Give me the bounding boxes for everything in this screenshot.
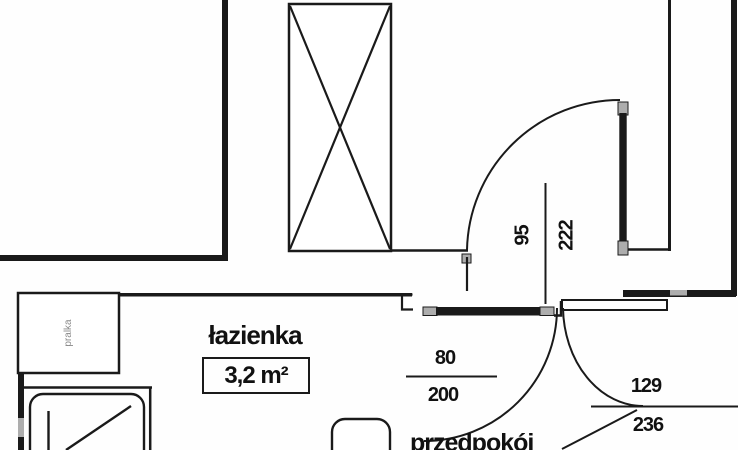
- hall-door-width: 95: [512, 206, 535, 266]
- bath-door-width: 80: [405, 347, 485, 370]
- hall-door-symbol: [467, 100, 628, 255]
- floor-plan: łazienka 3,2 m² przedpokój pralka 95 222…: [0, 0, 738, 450]
- bathroom-door-symbol: [423, 301, 561, 441]
- toilet-symbol: [332, 419, 390, 450]
- bath-door-height: 200: [403, 384, 483, 407]
- shower-symbol: [18, 387, 152, 450]
- washing-machine-label: pralka: [59, 303, 79, 363]
- hallway-label: przedpokój: [410, 429, 533, 450]
- bathroom-area-value: 3,2 m²: [224, 362, 287, 390]
- wall-upper-left: [0, 0, 228, 261]
- entry-door-width: 129: [606, 375, 686, 398]
- wall-right-side: [562, 0, 737, 310]
- bathroom-label: łazienka: [195, 320, 315, 351]
- ventilation-shaft-symbol: [289, 4, 391, 251]
- bathroom-area-box: 3,2 m²: [202, 357, 310, 394]
- wall-top-room: [391, 251, 471, 292]
- entry-door-height: 236: [608, 414, 688, 437]
- wall-bathroom-left: [18, 374, 24, 450]
- hall-door-height: 222: [556, 206, 579, 266]
